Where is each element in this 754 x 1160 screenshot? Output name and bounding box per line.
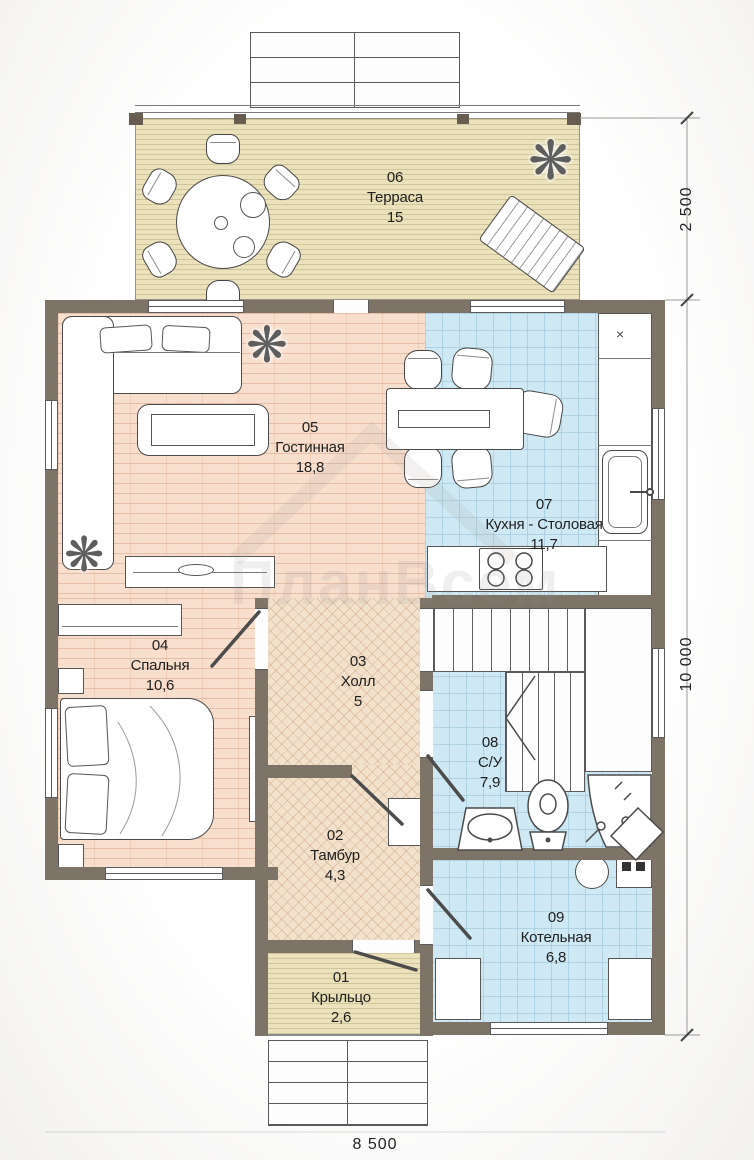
bottom-steps: [268, 1040, 428, 1126]
dimension-house-width: 8 500: [330, 1136, 420, 1154]
bed-blanket-lines: [118, 706, 180, 836]
room-label-kitchen: 07 Кухня - Столовая 11,7: [485, 495, 602, 555]
dimension-house-length: 10 000: [678, 619, 696, 709]
stair-break-line: [506, 676, 535, 760]
room-label-bathroom: 08 С/У 7,9: [478, 733, 502, 793]
dimension-lines: [45, 118, 700, 1132]
toilet: [528, 780, 568, 850]
room-label-terrace: 06 Терраса 15: [367, 168, 423, 228]
dimension-terrace-depth: 2 500: [678, 169, 696, 249]
room-label-bedroom: 04 Спальня 10,6: [131, 636, 190, 696]
watermark-text: ПланВсем: [230, 548, 561, 619]
floor-plan: ❋ ❋ ❋ ×: [0, 0, 754, 1160]
kitchen-faucet: [630, 489, 653, 495]
room-label-hall: 03 Холл 5: [341, 652, 376, 712]
bathroom-sink: [458, 808, 522, 850]
room-label-boiler: 09 Котельная 6,8: [521, 908, 592, 968]
room-label-porch: 01 Крыльцо 2,6: [311, 968, 371, 1028]
shower: [586, 775, 663, 860]
room-label-living: 05 Гостинная 18,8: [275, 418, 344, 478]
room-label-vestibule: 02 Тамбур 4,3: [310, 826, 360, 886]
